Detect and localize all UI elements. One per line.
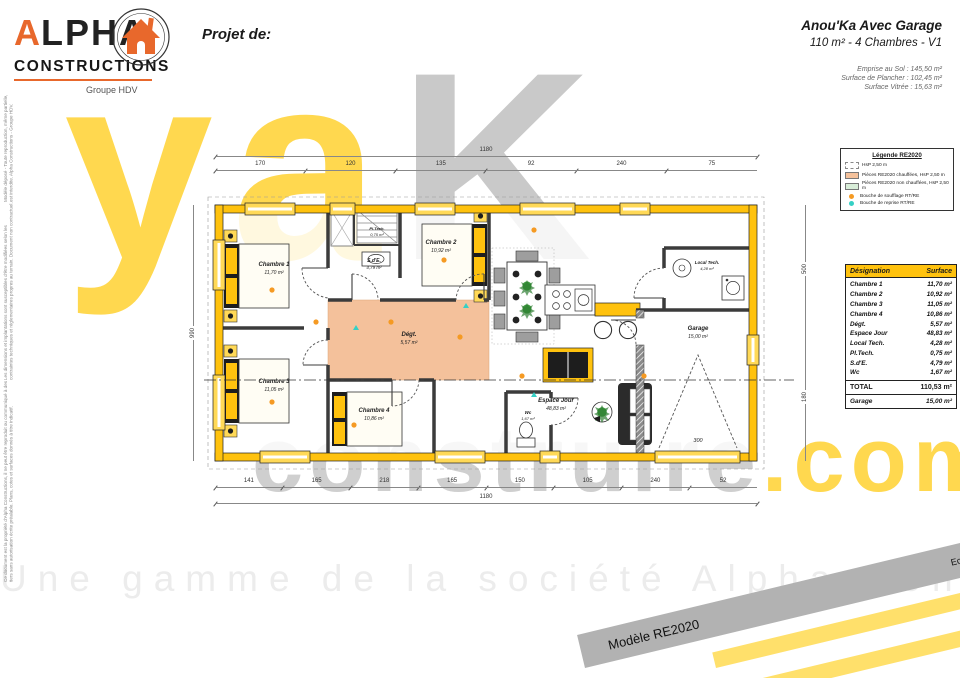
surface-stats: Emprise au Sol : 145,50 m² Surface de Pl…: [801, 65, 942, 92]
legend-box: Légende RE2020 HsP 2,50 m Pièces RE2020 …: [840, 148, 954, 211]
dim-row-top-overall: 1180: [215, 147, 757, 157]
supply-vent-icon: [849, 194, 854, 199]
dashed-swatch-icon: [845, 162, 859, 169]
svg-text:Dégt.: Dégt.: [402, 332, 417, 338]
legend-title: Légende RE2020: [845, 152, 949, 159]
tv-unit: [543, 348, 593, 382]
svg-text:Local Tech.: Local Tech.: [695, 260, 720, 265]
dimension-label: 240: [576, 161, 666, 171]
table-row: Espace Jour 48,83 m²: [846, 329, 956, 339]
garage-door-width: 300: [693, 438, 703, 444]
dimension-label: 92: [486, 161, 576, 171]
return-vent-icon: [849, 201, 854, 206]
logo-group-text: Groupe HDV: [86, 85, 204, 95]
dimension-label: 105: [554, 478, 622, 488]
svg-text:48,83 m²: 48,83 m²: [546, 406, 566, 412]
table-row: S.d'E. 4,79 m²: [846, 358, 956, 368]
dimension-label: 120: [305, 161, 395, 171]
title-block: Anou'Ka Avec Garage 110 m² - 4 Chambres …: [801, 18, 942, 92]
surface-table: Désignation Surface Chambre 1 11,70 m² C…: [845, 264, 957, 409]
dimension-label: 240: [622, 478, 690, 488]
plant-icon: [519, 280, 535, 296]
legend-item: HsP 2,50 m: [845, 162, 949, 169]
dim-row-top: 1701201359224075: [215, 161, 757, 171]
table-row: Dégt. 5,57 m²: [846, 319, 956, 329]
svg-text:0,75 m²: 0,75 m²: [370, 232, 384, 237]
legend-item: Pièces RE2020 non chauffées, HsP 2,50 m: [845, 181, 949, 191]
dimension-label: 75: [667, 161, 757, 171]
dimension-label: 141: [215, 478, 283, 488]
plant-icon: [519, 303, 535, 319]
legend-item: Pièces RE2020 chauffées, HsP 2,50 m: [845, 172, 949, 179]
project-label: Projet de:: [202, 26, 271, 43]
bar-stool: [594, 321, 611, 338]
svg-text:Chambre 1: Chambre 1: [258, 262, 290, 268]
dimension-label: 218: [351, 478, 419, 488]
dim-col-left: 990: [188, 205, 198, 461]
model-name: Modèle RE2020: [607, 616, 701, 652]
svg-text:Chambre 4: Chambre 4: [358, 408, 390, 414]
dim-row-bottom: 14116521816515010524052: [215, 478, 757, 488]
logo-letter-a: A: [14, 12, 41, 53]
dimension-label: 52: [689, 478, 757, 488]
legend-item: Bouche de reprise RT/RE: [845, 201, 949, 206]
garage-wall: [636, 310, 644, 318]
shower: [331, 210, 353, 246]
table-row: Local Tech. 4,28 m²: [846, 339, 956, 349]
legal-fine-print: Ce document est la propriété d'Alpha Con…: [3, 92, 14, 582]
svg-text:S.d'E.: S.d'E.: [367, 258, 381, 264]
legend-item: Bouche de soufflage RT/RE: [845, 194, 949, 199]
company-logo: ALPHA CONSTRUCTIONS Groupe HDV: [14, 12, 204, 95]
sofa: [618, 383, 652, 445]
table-row: Chambre 1 11,70 m²: [846, 280, 956, 290]
dimension-label: 165: [418, 478, 486, 488]
stat-vitree: Surface Vitrée : 15,63 m²: [801, 83, 942, 92]
svg-text:5,57 m²: 5,57 m²: [401, 340, 418, 346]
model-title: Anou'Ka Avec Garage: [801, 18, 942, 33]
garage-wall: [636, 345, 644, 453]
table-body: Chambre 1 11,70 m² Chambre 2 10,92 m² Ch…: [846, 278, 956, 380]
orange-swatch-icon: [845, 172, 859, 179]
stat-emprise: Emprise au Sol : 145,50 m²: [801, 65, 942, 74]
table-header: Désignation Surface: [846, 265, 956, 278]
plan-sheet: yaK construire.com Une gamme de la socié…: [0, 0, 960, 678]
svg-text:Pl.Tech.: Pl.Tech.: [369, 226, 384, 231]
svg-text:1,67 m²: 1,67 m²: [521, 416, 535, 421]
table-total-row: TOTAL 110,53 m²: [846, 380, 956, 394]
dimension-label: 170: [215, 161, 305, 171]
water-heater: [673, 259, 691, 277]
dimension-label: 165: [283, 478, 351, 488]
logo-wordmark: ALPHA: [14, 12, 204, 56]
svg-text:Wc: Wc: [525, 410, 532, 415]
green-swatch-icon: [845, 183, 859, 190]
svg-text:11,70 m²: 11,70 m²: [264, 270, 284, 276]
table-row: Chambre 3 11,05 m²: [846, 300, 956, 310]
dimension-label: 150: [486, 478, 554, 488]
svg-text:Chambre 3: Chambre 3: [258, 379, 290, 385]
logo-constructions-text: CONSTRUCTIONS: [14, 58, 204, 76]
stat-plancher: Surface de Plancher : 102,45 m²: [801, 74, 942, 83]
table-row: Pl.Tech. 0,75 m²: [846, 348, 956, 358]
svg-text:10,92 m²: 10,92 m²: [431, 248, 451, 254]
floor-plan: 300 Chambre 1 11,70 m² S.d'E. 4,79 m² Pl…: [204, 140, 794, 520]
svg-text:10,86 m²: 10,86 m²: [364, 416, 384, 422]
svg-text:Espace Jour: Espace Jour: [538, 398, 574, 404]
bar-stool: [619, 321, 636, 338]
svg-text:15,00 m²: 15,00 m²: [688, 334, 708, 340]
table-row: Chambre 2 10,92 m²: [846, 290, 956, 300]
table-garage-row: Garage 15,00 m²: [846, 394, 956, 408]
svg-text:4,79 m²: 4,79 m²: [366, 265, 382, 270]
svg-text:Chambre 2: Chambre 2: [425, 240, 457, 246]
table-row: Chambre 4 10,86 m²: [846, 309, 956, 319]
logo-underline: [14, 79, 152, 81]
table-row: Wc 1,67 m²: [846, 368, 956, 378]
svg-text:11,05 m²: 11,05 m²: [264, 387, 284, 393]
washing-machine: [722, 276, 744, 300]
dimension-label: 135: [396, 161, 486, 171]
svg-text:Garage: Garage: [688, 326, 709, 332]
model-subtitle: 110 m² - 4 Chambres - V1: [801, 37, 942, 49]
scale-label: Echelle 1:75: [950, 546, 960, 567]
kitchen-counter: [595, 303, 640, 316]
dim-row-bottom-overall: 1180: [215, 494, 757, 504]
dim-col-right: 500 180: [800, 205, 810, 461]
house-icon: [110, 6, 172, 73]
svg-text:4,28 m²: 4,28 m²: [700, 266, 714, 271]
